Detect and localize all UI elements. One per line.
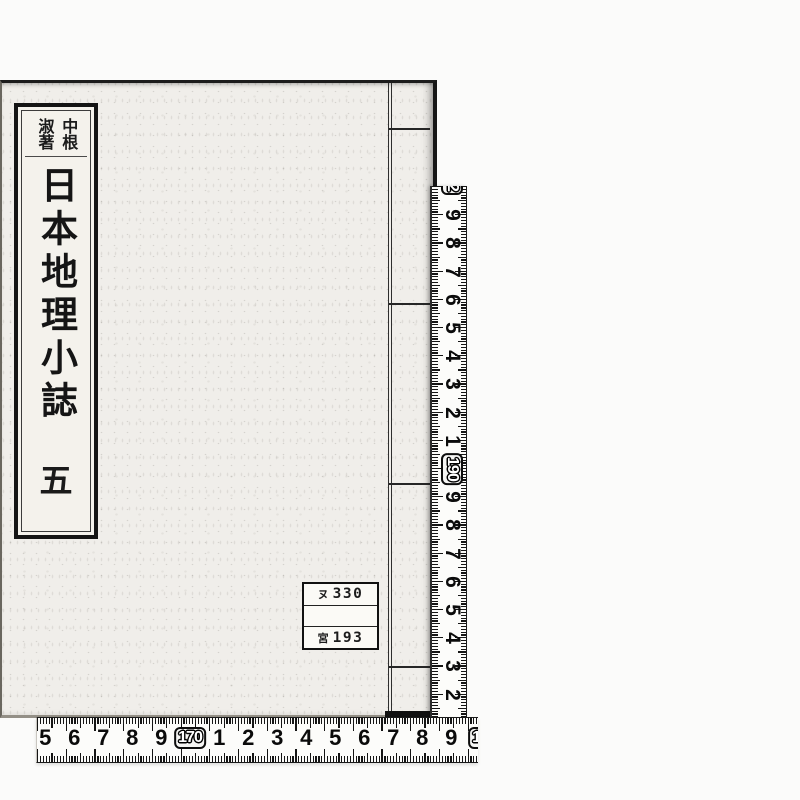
- mm-tick: [461, 364, 467, 365]
- mm-tick: [361, 718, 362, 724]
- mm-tick: [459, 756, 460, 762]
- mm-tick: [461, 195, 467, 196]
- mm-tick: [183, 756, 184, 762]
- mm-tick: [92, 756, 93, 762]
- mm-tick: [146, 718, 147, 724]
- mm-tick: [461, 420, 467, 421]
- mm-tick: [356, 718, 357, 724]
- mm-tick: [458, 651, 466, 652]
- mm-tick: [461, 448, 467, 449]
- mm-tick: [461, 657, 467, 658]
- mm-tick: [350, 756, 351, 762]
- mm-tick: [432, 268, 438, 269]
- mm-tick: [432, 389, 438, 390]
- call-number-label: ヌ 330 宮 193: [302, 582, 379, 650]
- mm-tick: [432, 629, 438, 630]
- mm-tick: [432, 668, 438, 669]
- title-label-inner-frame: 中根 淑著 日本地理小誌 五: [21, 110, 91, 532]
- mm-tick: [470, 718, 471, 724]
- mm-tick: [432, 279, 438, 280]
- mm-tick: [432, 429, 438, 430]
- mm-tick: [376, 756, 377, 762]
- mm-tick: [54, 756, 55, 762]
- mm-tick: [432, 691, 438, 692]
- mm-tick: [432, 462, 438, 463]
- call-number-row: [304, 605, 377, 627]
- mm-tick: [432, 564, 438, 565]
- mm-tick: [458, 510, 466, 511]
- mm-tick: [132, 756, 133, 762]
- mm-tick: [432, 530, 438, 531]
- mm-tick: [318, 718, 319, 724]
- mm-tick: [473, 756, 474, 762]
- mm-tick: [432, 586, 438, 587]
- mm-tick: [350, 718, 351, 724]
- mm-tick: [432, 649, 438, 650]
- mm-tick: [432, 657, 438, 658]
- mm-tick: [298, 756, 299, 762]
- mm-tick: [432, 367, 438, 368]
- mm-tick: [432, 406, 438, 407]
- mm-tick: [432, 409, 438, 410]
- ruler-number: 8: [440, 238, 464, 250]
- ruler-number: 3: [271, 725, 283, 751]
- mm-tick: [442, 718, 443, 724]
- mm-tick: [399, 756, 400, 762]
- mm-tick: [74, 756, 75, 762]
- mm-tick: [186, 718, 187, 724]
- mm-tick: [416, 756, 417, 762]
- mm-tick: [432, 386, 438, 387]
- mm-tick: [461, 282, 467, 283]
- mm-tick: [432, 316, 438, 317]
- mm-tick: [152, 718, 153, 731]
- mm-tick: [117, 756, 118, 762]
- mm-tick: [432, 646, 438, 647]
- mm-tick: [103, 756, 104, 762]
- mm-tick: [169, 718, 170, 724]
- ruler-number: 7: [440, 548, 464, 560]
- mm-tick: [238, 718, 239, 731]
- mm-tick: [327, 718, 328, 724]
- mm-tick: [229, 718, 230, 724]
- mm-tick: [40, 718, 41, 724]
- mm-tick: [218, 756, 219, 762]
- mm-tick: [152, 749, 153, 762]
- binding-thread: [388, 83, 392, 715]
- mm-tick: [370, 756, 371, 762]
- mm-tick: [364, 756, 365, 762]
- mm-tick: [244, 756, 245, 762]
- mm-tick: [461, 561, 467, 562]
- mm-tick: [270, 718, 271, 724]
- mm-tick: [143, 756, 144, 762]
- mm-tick: [432, 290, 438, 291]
- mm-tick: [163, 756, 164, 762]
- mm-tick: [432, 561, 438, 562]
- mm-tick: [390, 756, 391, 762]
- mm-tick: [432, 276, 438, 277]
- mm-tick: [432, 510, 440, 511]
- mm-tick: [364, 718, 365, 724]
- mm-tick: [432, 448, 438, 449]
- mm-tick: [432, 505, 438, 506]
- mm-tick: [432, 685, 438, 686]
- mm-tick: [432, 634, 438, 635]
- mm-tick: [461, 429, 467, 430]
- mm-tick: [146, 756, 147, 762]
- mm-tick: [232, 718, 233, 724]
- mm-tick: [166, 753, 167, 763]
- mm-tick: [432, 423, 438, 424]
- mm-tick: [432, 321, 438, 322]
- mm-tick: [432, 460, 438, 461]
- mm-tick: [432, 262, 438, 263]
- mm-tick: [330, 718, 331, 724]
- binding-stitch: [389, 483, 430, 485]
- mm-tick: [432, 479, 438, 480]
- mm-tick: [138, 753, 139, 763]
- mm-tick: [432, 491, 438, 492]
- mm-tick: [89, 718, 90, 724]
- mm-tick: [40, 756, 41, 762]
- mm-tick: [432, 454, 440, 455]
- mm-tick: [461, 713, 467, 714]
- mm-tick: [106, 718, 107, 724]
- mm-tick: [461, 197, 467, 198]
- mm-tick: [432, 620, 438, 621]
- mm-tick: [432, 395, 438, 396]
- mm-tick: [201, 718, 202, 724]
- mm-tick: [71, 756, 72, 762]
- mm-tick: [301, 756, 302, 762]
- mm-tick: [135, 718, 136, 724]
- mm-tick: [307, 756, 308, 762]
- mm-tick: [290, 718, 291, 724]
- mm-tick: [129, 718, 130, 724]
- mm-tick: [432, 592, 438, 593]
- mm-tick: [461, 395, 467, 396]
- mm-tick: [358, 718, 359, 724]
- mm-tick: [461, 654, 467, 655]
- mm-tick: [432, 293, 438, 294]
- ruler-number: 9: [445, 725, 457, 751]
- mm-tick: [461, 592, 467, 593]
- mm-tick: [461, 702, 467, 703]
- mm-tick: [43, 756, 44, 762]
- ruler-number: 9: [440, 209, 464, 221]
- mm-tick: [432, 350, 438, 351]
- author-label-column: 中根: [59, 118, 76, 150]
- mm-tick: [432, 632, 438, 633]
- mm-tick: [198, 718, 199, 724]
- mm-tick: [432, 474, 438, 475]
- mm-tick: [221, 756, 222, 762]
- mm-tick: [80, 718, 81, 728]
- mm-tick: [458, 567, 466, 568]
- mm-tick: [433, 718, 434, 724]
- mm-tick: [458, 313, 466, 314]
- mm-tick: [424, 753, 425, 763]
- mm-tick: [83, 756, 84, 762]
- mm-tick: [461, 423, 467, 424]
- mm-tick: [407, 718, 408, 724]
- mm-tick: [106, 756, 107, 762]
- mm-tick: [432, 457, 438, 458]
- mm-tick: [450, 756, 451, 762]
- mm-tick: [51, 718, 52, 728]
- ruler-number: 3: [440, 379, 464, 391]
- mm-tick: [430, 756, 431, 762]
- ruler-number: 18: [468, 727, 478, 749]
- ruler-number: 7: [97, 725, 109, 751]
- mm-tick: [226, 756, 227, 762]
- book-cover: 中根 淑著 日本地理小誌 五 ヌ 330 宮 193: [0, 80, 437, 718]
- mm-tick: [361, 756, 362, 762]
- mm-tick: [461, 259, 467, 260]
- mm-tick: [432, 711, 438, 712]
- mm-tick: [284, 718, 285, 724]
- ruler-number: 190: [441, 453, 463, 485]
- mm-tick: [432, 206, 438, 207]
- mm-tick: [432, 606, 438, 607]
- mm-tick: [46, 756, 47, 762]
- mm-tick: [267, 749, 268, 762]
- mm-tick: [461, 336, 467, 337]
- mm-tick: [410, 718, 411, 731]
- mm-tick: [432, 688, 438, 689]
- mm-tick: [313, 756, 314, 762]
- ruler-number: 6: [68, 725, 80, 751]
- mm-tick: [461, 513, 467, 514]
- mm-tick: [132, 718, 133, 724]
- mm-tick: [344, 718, 345, 724]
- mm-tick: [458, 200, 466, 201]
- mm-tick: [432, 589, 438, 590]
- mm-tick: [281, 753, 282, 763]
- ruler-number: 7: [440, 266, 464, 278]
- mm-tick: [461, 262, 467, 263]
- mm-tick: [461, 505, 467, 506]
- binding-stitch: [389, 303, 430, 305]
- mm-tick: [163, 718, 164, 724]
- mm-tick: [458, 426, 466, 427]
- mm-tick: [432, 257, 440, 258]
- mm-tick: [321, 718, 322, 724]
- mm-tick: [221, 718, 222, 724]
- mm-tick: [432, 304, 438, 305]
- mm-tick: [432, 615, 438, 616]
- mm-tick: [57, 718, 58, 724]
- mm-tick: [461, 231, 467, 232]
- mm-tick: [458, 539, 466, 540]
- ruler-number: 9: [440, 491, 464, 503]
- mm-tick: [318, 756, 319, 762]
- ruler-number: 8: [126, 725, 138, 751]
- mm-tick: [249, 718, 250, 724]
- mm-tick: [267, 718, 268, 731]
- mm-tick: [432, 570, 438, 571]
- mm-tick: [432, 209, 438, 210]
- mm-tick: [402, 756, 403, 762]
- mm-tick: [367, 753, 368, 763]
- mm-tick: [290, 756, 291, 762]
- mm-tick: [69, 756, 70, 762]
- mm-tick: [432, 660, 438, 661]
- mm-tick: [432, 417, 438, 418]
- mm-tick: [432, 251, 438, 252]
- call-number-value: 193: [333, 630, 364, 646]
- mm-tick: [336, 756, 337, 762]
- mm-tick: [432, 663, 438, 664]
- call-number-prefix: ヌ: [318, 586, 329, 602]
- mm-tick: [321, 756, 322, 762]
- mm-tick: [432, 705, 438, 706]
- mm-tick: [432, 338, 438, 339]
- mm-tick: [432, 372, 438, 373]
- mm-tick: [92, 718, 93, 724]
- mm-tick: [432, 651, 440, 652]
- mm-tick: [432, 713, 438, 714]
- mm-tick: [461, 646, 467, 647]
- mm-tick: [432, 443, 438, 444]
- mm-tick: [304, 756, 305, 762]
- mm-tick: [432, 493, 438, 494]
- mm-tick: [461, 338, 467, 339]
- mm-tick: [432, 228, 440, 229]
- mm-tick: [461, 319, 467, 320]
- ruler-number: 170: [174, 727, 206, 749]
- mm-tick: [432, 575, 438, 576]
- mm-tick: [432, 502, 438, 503]
- mm-tick: [476, 718, 477, 724]
- mm-tick: [432, 330, 438, 331]
- mm-tick: [370, 718, 371, 724]
- mm-tick: [272, 756, 273, 762]
- mm-tick: [430, 718, 431, 724]
- mm-tick: [333, 718, 334, 724]
- mm-tick: [461, 572, 467, 573]
- mm-tick: [432, 578, 438, 579]
- mm-tick: [462, 756, 463, 762]
- mm-tick: [218, 718, 219, 724]
- mm-tick: [453, 753, 454, 763]
- mm-tick: [458, 285, 466, 286]
- mm-tick: [432, 398, 440, 399]
- mm-tick: [77, 718, 78, 724]
- ruler-number: 8: [416, 725, 428, 751]
- mm-tick: [120, 756, 121, 762]
- mm-tick: [458, 369, 466, 370]
- mm-tick: [189, 756, 190, 762]
- ruler-number: 5: [440, 322, 464, 334]
- mm-tick: [264, 756, 265, 762]
- mm-tick: [432, 259, 438, 260]
- mm-tick: [287, 718, 288, 724]
- mm-tick: [432, 265, 438, 266]
- mm-tick: [287, 756, 288, 762]
- mm-tick: [432, 584, 438, 585]
- mm-tick: [143, 718, 144, 724]
- mm-tick: [432, 682, 438, 683]
- mm-tick: [432, 302, 438, 303]
- mm-tick: [241, 756, 242, 762]
- mm-tick: [264, 718, 265, 724]
- mm-tick: [461, 234, 467, 235]
- mm-tick: [112, 718, 113, 724]
- mm-tick: [432, 522, 438, 523]
- mm-tick: [172, 756, 173, 762]
- title-label: 中根 淑著 日本地理小誌 五: [14, 103, 98, 539]
- mm-tick: [432, 245, 438, 246]
- mm-tick: [192, 718, 193, 724]
- mm-tick: [379, 756, 380, 762]
- mm-tick: [77, 756, 78, 762]
- mm-tick: [275, 718, 276, 724]
- mm-tick: [473, 718, 474, 724]
- mm-tick: [336, 718, 337, 724]
- mm-tick: [432, 677, 438, 678]
- ruler-number: 2: [440, 407, 464, 419]
- mm-tick: [60, 718, 61, 724]
- mm-tick: [461, 288, 467, 289]
- mm-tick: [432, 544, 438, 545]
- mm-tick: [461, 533, 467, 534]
- mm-tick: [66, 749, 67, 762]
- mm-tick: [432, 220, 438, 221]
- mm-tick: [432, 601, 438, 602]
- mm-tick: [461, 629, 467, 630]
- mm-tick: [393, 756, 394, 762]
- ruler-number: 6: [358, 725, 370, 751]
- mm-tick: [158, 718, 159, 724]
- mm-tick: [404, 718, 405, 724]
- mm-tick: [461, 536, 467, 537]
- mm-tick: [140, 718, 141, 724]
- mm-tick: [100, 756, 101, 762]
- mm-tick: [461, 620, 467, 621]
- mm-tick: [313, 718, 314, 724]
- mm-tick: [433, 756, 434, 762]
- mm-tick: [51, 753, 52, 763]
- binding-stitch: [389, 128, 430, 130]
- mm-tick: [432, 488, 438, 489]
- mm-tick: [432, 381, 438, 382]
- mm-tick: [461, 392, 467, 393]
- mm-tick: [432, 696, 438, 697]
- mm-tick: [301, 718, 302, 724]
- mm-tick: [209, 749, 210, 762]
- author-label-column: 淑著: [36, 118, 53, 150]
- mm-tick: [432, 595, 440, 596]
- mm-tick: [272, 718, 273, 724]
- mm-tick: [178, 756, 179, 762]
- mm-tick: [432, 702, 438, 703]
- mm-tick: [379, 718, 380, 724]
- mm-tick: [432, 307, 438, 308]
- mm-tick: [432, 598, 438, 599]
- mm-tick: [206, 756, 207, 762]
- mm-tick: [413, 718, 414, 724]
- mm-tick: [189, 718, 190, 724]
- mm-tick: [247, 756, 248, 762]
- mm-tick: [396, 753, 397, 763]
- mm-tick: [432, 485, 438, 486]
- mm-tick: [49, 718, 50, 724]
- mm-tick: [407, 756, 408, 762]
- mm-tick: [226, 718, 227, 724]
- mm-tick: [103, 718, 104, 724]
